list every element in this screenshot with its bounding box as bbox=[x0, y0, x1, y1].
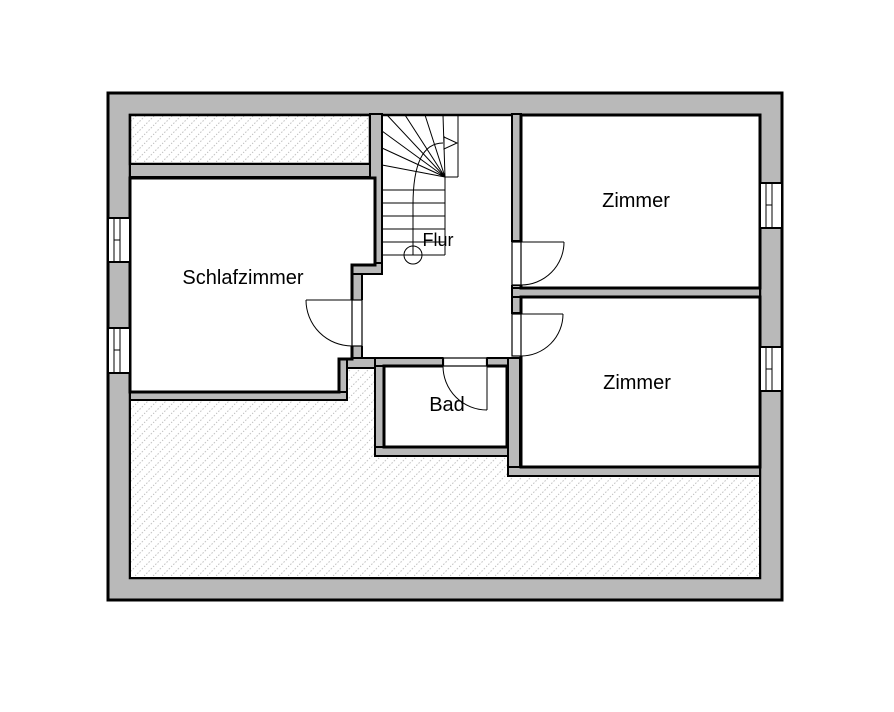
window-right-1 bbox=[760, 183, 782, 228]
floor-plan: Schlafzimmer Zimmer Zimmer Bad Flur bbox=[0, 0, 894, 712]
roof-slope-strip-top bbox=[130, 115, 370, 164]
wall-under-strip bbox=[130, 164, 382, 177]
window-right-2 bbox=[760, 347, 782, 391]
door-jamb-zimmer-top bbox=[512, 242, 521, 285]
stair-direction-arrow-icon bbox=[444, 137, 457, 149]
label-flur: Flur bbox=[423, 230, 454, 250]
door-jamb-bad bbox=[444, 358, 487, 366]
label-schlafzimmer: Schlafzimmer bbox=[182, 267, 303, 289]
door-jamb-zimmer-bottom bbox=[512, 314, 521, 356]
wall-bad-right bbox=[508, 358, 520, 476]
label-bad: Bad bbox=[429, 394, 465, 416]
door-jamb-schlafzimmer bbox=[352, 300, 362, 346]
window-left-2 bbox=[108, 328, 130, 373]
label-zimmer-bottom: Zimmer bbox=[603, 372, 671, 394]
label-zimmer-top: Zimmer bbox=[602, 190, 670, 212]
window-left-1 bbox=[108, 218, 130, 262]
